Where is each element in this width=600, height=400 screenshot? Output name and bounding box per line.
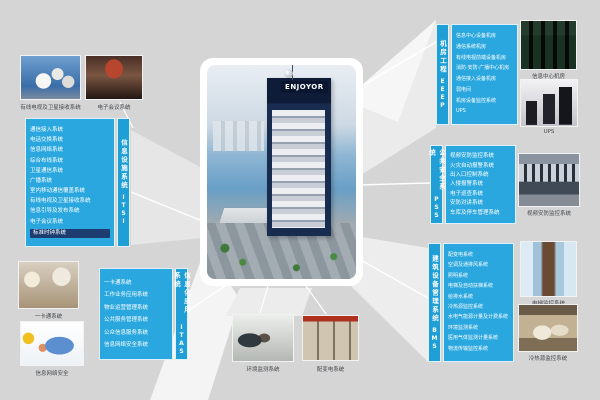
itsi-system-list: 通信接入系统电话交换系统信息网络系统综合布线系统卫星通信系统广播系统室内移动通信… bbox=[25, 118, 115, 247]
itsi-code: ITSI bbox=[120, 194, 127, 226]
system-item: 公众信息服务系统 bbox=[104, 330, 168, 336]
building-card: ENJOYOR bbox=[200, 58, 363, 286]
system-item: 信息网络系统 bbox=[30, 147, 110, 153]
system-item: 视频安防监控系统 bbox=[450, 153, 511, 159]
system-item: 综合布线系统 bbox=[30, 158, 110, 164]
eeep-title: 机房工程 bbox=[438, 40, 448, 74]
photo-caption: 冷热源监控系统 bbox=[508, 354, 588, 362]
box-itsi: 通信接入系统电话交换系统信息网络系统综合布线系统卫星通信系统广播系统室内移动通信… bbox=[25, 118, 130, 247]
itsi-title: 信息设施系统 bbox=[119, 139, 129, 190]
bms-code: BMS bbox=[431, 327, 438, 351]
photo-server-room bbox=[520, 20, 577, 70]
system-item: 信息网络安全系统 bbox=[104, 342, 168, 348]
system-item: 弱电间 bbox=[456, 88, 513, 94]
photo-hvac-office bbox=[518, 304, 578, 352]
box-pss: 公共安全系统 PSS 视频安防监控系统火灾自动报警系统出入口控制系统入侵报警系统… bbox=[430, 145, 516, 224]
system-item: 信息中心设备机房 bbox=[456, 34, 513, 40]
building-tower: ENJOYOR bbox=[267, 78, 331, 236]
system-item: 一卡通系统 bbox=[104, 280, 168, 286]
system-item: 有线电视前端设备机房 bbox=[456, 56, 513, 62]
itas-title: 信息化应用系统 bbox=[172, 272, 192, 320]
system-item: 标准时钟系统 bbox=[30, 229, 110, 238]
system-item: 通信接入系统 bbox=[30, 127, 110, 133]
system-item: 冷热源监控系统 bbox=[448, 305, 509, 311]
system-item: 机房设备监控系统 bbox=[456, 99, 513, 105]
system-item: 卫星通信系统 bbox=[30, 168, 110, 174]
building-sign: ENJOYOR bbox=[281, 81, 328, 93]
box-itas: 一卡通系统工作业务应用系统物业运营管理系统公共服务管理系统公众信息服务系统信息网… bbox=[99, 268, 188, 360]
photo-monitoring-lab bbox=[232, 314, 294, 362]
itas-system-list: 一卡通系统工作业务应用系统物业运营管理系统公共服务管理系统公众信息服务系统信息网… bbox=[99, 268, 173, 360]
photo-caption: UPS bbox=[510, 129, 588, 135]
system-item: 公共服务管理系统 bbox=[104, 317, 168, 323]
eeep-title-strip: 机房工程 EEEP bbox=[436, 24, 449, 125]
photo-elevator-atrium bbox=[520, 241, 577, 297]
system-item: 出入口控制系统 bbox=[450, 172, 511, 178]
photo-satellite-dishes bbox=[20, 55, 81, 100]
pss-title: 公共安全系统 bbox=[427, 149, 447, 192]
photo-control-room bbox=[518, 153, 580, 207]
system-item: 电话交换系统 bbox=[30, 137, 110, 143]
eeep-code: EEEP bbox=[439, 78, 446, 110]
photo-caption: 信息网络安全 bbox=[10, 369, 94, 377]
system-item: 有线电视及卫星接收系统 bbox=[30, 198, 110, 204]
smart-building-diagram: 通信接入系统电话交换系统信息网络系统综合布线系统卫星通信系统广播系统室内移动通信… bbox=[0, 0, 600, 400]
system-item: 安防对讲系统 bbox=[450, 200, 511, 206]
eeep-system-list: 信息中心设备机房通信系统机房有线电视前端设备机房消防·安防·广播中心机房通信接入… bbox=[451, 24, 518, 125]
photo-card-counter bbox=[18, 261, 79, 309]
box-bms: 建筑设备管理系统 BMS 配变电系统空调及通排风系统照明系统电梯及自动扶梯系统给… bbox=[428, 243, 514, 362]
pss-system-list: 视频安防监控系统火灾自动报警系统出入口控制系统入侵报警系统电子巡查系统安防对讲系… bbox=[445, 145, 516, 224]
itsi-title-strip: 信息设施系统 ITSI bbox=[117, 118, 130, 247]
system-item: 物业运营管理系统 bbox=[104, 305, 168, 311]
photo-caption: 配变电系统 bbox=[292, 365, 369, 373]
photo-caption: 视频安防监控系统 bbox=[508, 209, 590, 217]
pss-code: PSS bbox=[433, 196, 440, 220]
photo-ups-units bbox=[520, 79, 578, 127]
photo-caption: 电子会议系统 bbox=[75, 103, 153, 111]
system-item: 给排水系统 bbox=[448, 295, 509, 301]
pss-title-strip: 公共安全系统 PSS bbox=[430, 145, 443, 224]
tower-floors-cutaway bbox=[272, 110, 325, 229]
system-item: 照明系统 bbox=[448, 274, 509, 280]
system-item: 环境监测系统 bbox=[448, 326, 509, 332]
photo-caption: 一卡通系统 bbox=[8, 312, 89, 320]
box-eeep: 机房工程 EEEP 信息中心设备机房通信系统机房有线电视前端设备机房消防·安防·… bbox=[436, 24, 518, 125]
system-item: 入侵报警系统 bbox=[450, 181, 511, 187]
system-item: 物流传输监控系统 bbox=[448, 347, 509, 353]
system-item: 广播系统 bbox=[30, 178, 110, 184]
system-item: 水电气能源计量及计费系统 bbox=[448, 315, 509, 321]
system-item: 配变电系统 bbox=[448, 253, 509, 259]
system-item: 室内移动通信覆盖系统 bbox=[30, 188, 110, 194]
system-item: 车库及停车管理系统 bbox=[450, 210, 511, 216]
system-item: 医用气体监测计量系统 bbox=[448, 336, 509, 342]
itas-title-strip: 信息化应用系统 ITAS bbox=[175, 268, 188, 360]
building-rendering: ENJOYOR bbox=[207, 65, 356, 279]
bms-title-strip: 建筑设备管理系统 BMS bbox=[428, 243, 441, 362]
system-item: 通信系统机房 bbox=[456, 45, 513, 51]
system-item: 信息引导及发布系统 bbox=[30, 208, 110, 214]
city-background bbox=[213, 121, 264, 151]
system-item: 工作业务应用系统 bbox=[104, 292, 168, 298]
photo-power-cabinets bbox=[302, 315, 359, 361]
system-item: 火灾自动报警系统 bbox=[450, 163, 511, 169]
bms-title: 建筑设备管理系统 bbox=[430, 255, 440, 323]
system-item: 电子会议系统 bbox=[30, 219, 110, 225]
system-item: UPS bbox=[456, 109, 513, 115]
itas-code: ITAS bbox=[178, 324, 185, 356]
photo-network-security bbox=[20, 321, 84, 366]
system-item: 通信接入设备机房 bbox=[456, 77, 513, 83]
system-item: 消防·安防·广播中心机房 bbox=[456, 66, 513, 72]
bms-system-list: 配变电系统空调及通排风系统照明系统电梯及自动扶梯系统给排水系统冷热源监控系统水电… bbox=[443, 243, 514, 362]
system-item: 电子巡查系统 bbox=[450, 191, 511, 197]
system-item: 电梯及自动扶梯系统 bbox=[448, 284, 509, 290]
system-item: 空调及通排风系统 bbox=[448, 263, 509, 269]
photo-conference-hall bbox=[85, 55, 143, 100]
